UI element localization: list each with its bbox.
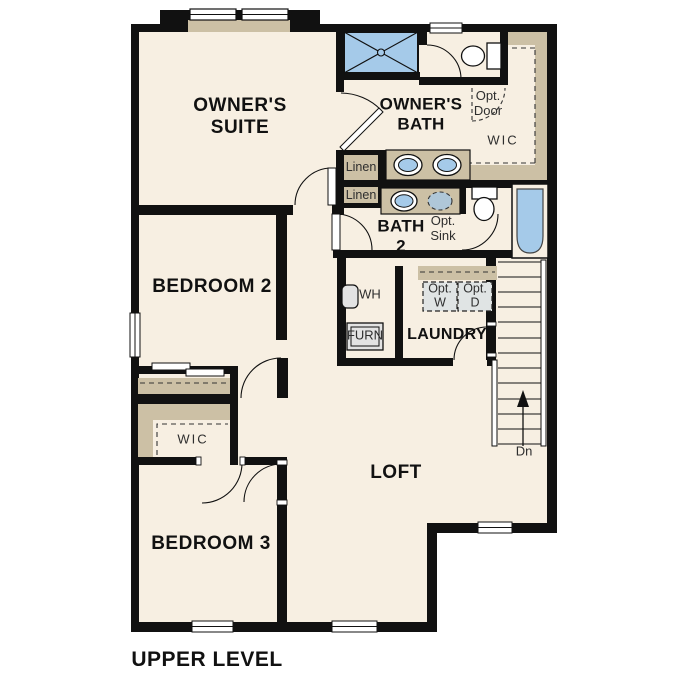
window-loft-step (478, 522, 512, 533)
stair-handrail (541, 260, 546, 446)
optional-sink (428, 192, 452, 210)
window-loft-bottom (332, 621, 377, 632)
window-bedroom3 (192, 621, 233, 632)
optional-dryer (458, 282, 492, 311)
window-top (430, 23, 462, 33)
owners-bath-vanity (386, 150, 470, 180)
shower (344, 32, 418, 73)
bath2-vanity (381, 188, 460, 214)
water-heater (342, 285, 358, 308)
floor-plan-drawing (0, 0, 687, 687)
window-left-bedroom2 (130, 313, 140, 357)
furnace (347, 323, 383, 350)
optional-washer (423, 282, 457, 311)
floor-plan-page: OWNER'S SUITE OWNER'S BATH WIC BATH 2 Op… (0, 0, 687, 687)
bathtub (512, 184, 548, 258)
